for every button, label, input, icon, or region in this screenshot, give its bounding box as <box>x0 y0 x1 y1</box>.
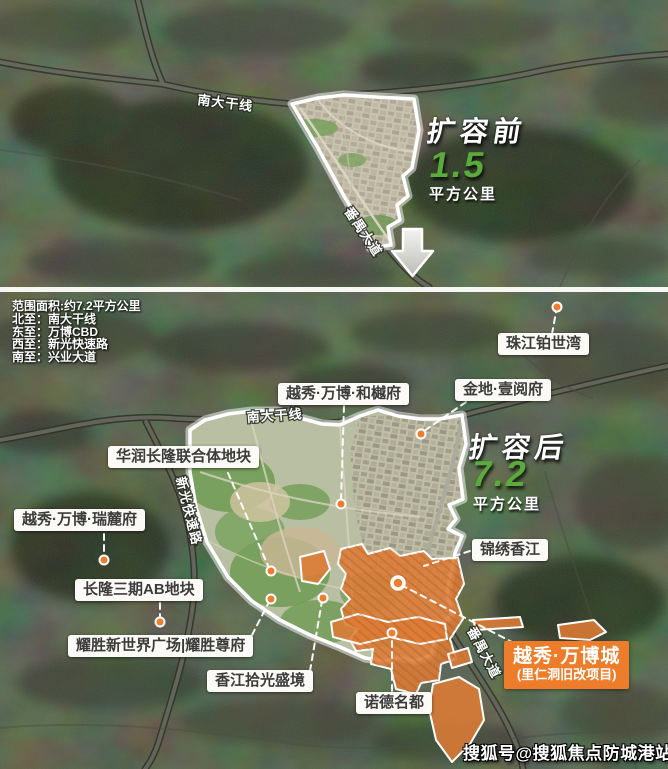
place-label-xiangjiang-shiguang: 香江拾光盛境 <box>207 670 313 692</box>
after-area-value: 7.2 <box>469 456 531 492</box>
scope-north: 北至：南大干线 <box>12 313 141 326</box>
expansion-comparison-infographic: 南大干线 番禺大道 <box>0 0 668 769</box>
place-label-heyuefu: 越秀·万博·和樾府 <box>278 383 409 405</box>
project-subtitle: (里仁洞旧改项目) <box>513 667 620 683</box>
place-label-changlong-ab: 长隆三期AB地块 <box>75 579 203 601</box>
watermark: 搜狐号@搜狐焦点防城港站 <box>463 739 668 764</box>
place-label-jinxiu-xiangjiang: 锦绣香江 <box>472 539 548 561</box>
place-label-yaosheng: 耀胜新世界广场|耀胜尊府 <box>68 635 253 657</box>
satellite-map-before: 南大干线 番禺大道 <box>0 0 668 287</box>
place-label-nuode-mingdu: 诺德名都 <box>356 692 432 714</box>
before-title: 扩容前 <box>425 118 528 146</box>
before-area-value: 1.5 <box>427 147 489 183</box>
project-title: 越秀·万博城 <box>513 646 620 667</box>
scope-info: 范围面积:约7.2平方公里 北至：南大干线 东至：万博CBD 西至：新光快速路 … <box>12 300 141 364</box>
scope-south: 南至：兴业大道 <box>12 351 141 364</box>
place-label-zhujiang-boshiwan: 珠江铂世湾 <box>498 333 589 355</box>
place-label-jindi-yiyuefu: 金地·壹阅府 <box>455 379 551 401</box>
map-divider <box>0 287 668 292</box>
after-area-unit: 平方公里 <box>473 497 541 512</box>
project-center-dot <box>392 577 404 589</box>
place-label-ruilufu: 越秀·万博·瑞麓府 <box>14 509 145 531</box>
before-area-unit: 平方公里 <box>429 187 497 202</box>
scope-area: 范围面积:约7.2平方公里 <box>12 300 141 313</box>
project-box-wanbocheng: 越秀·万博城 (里仁洞旧改项目) <box>504 641 629 689</box>
place-label-huarun-changlong: 华润长隆联合体地块 <box>108 446 259 468</box>
